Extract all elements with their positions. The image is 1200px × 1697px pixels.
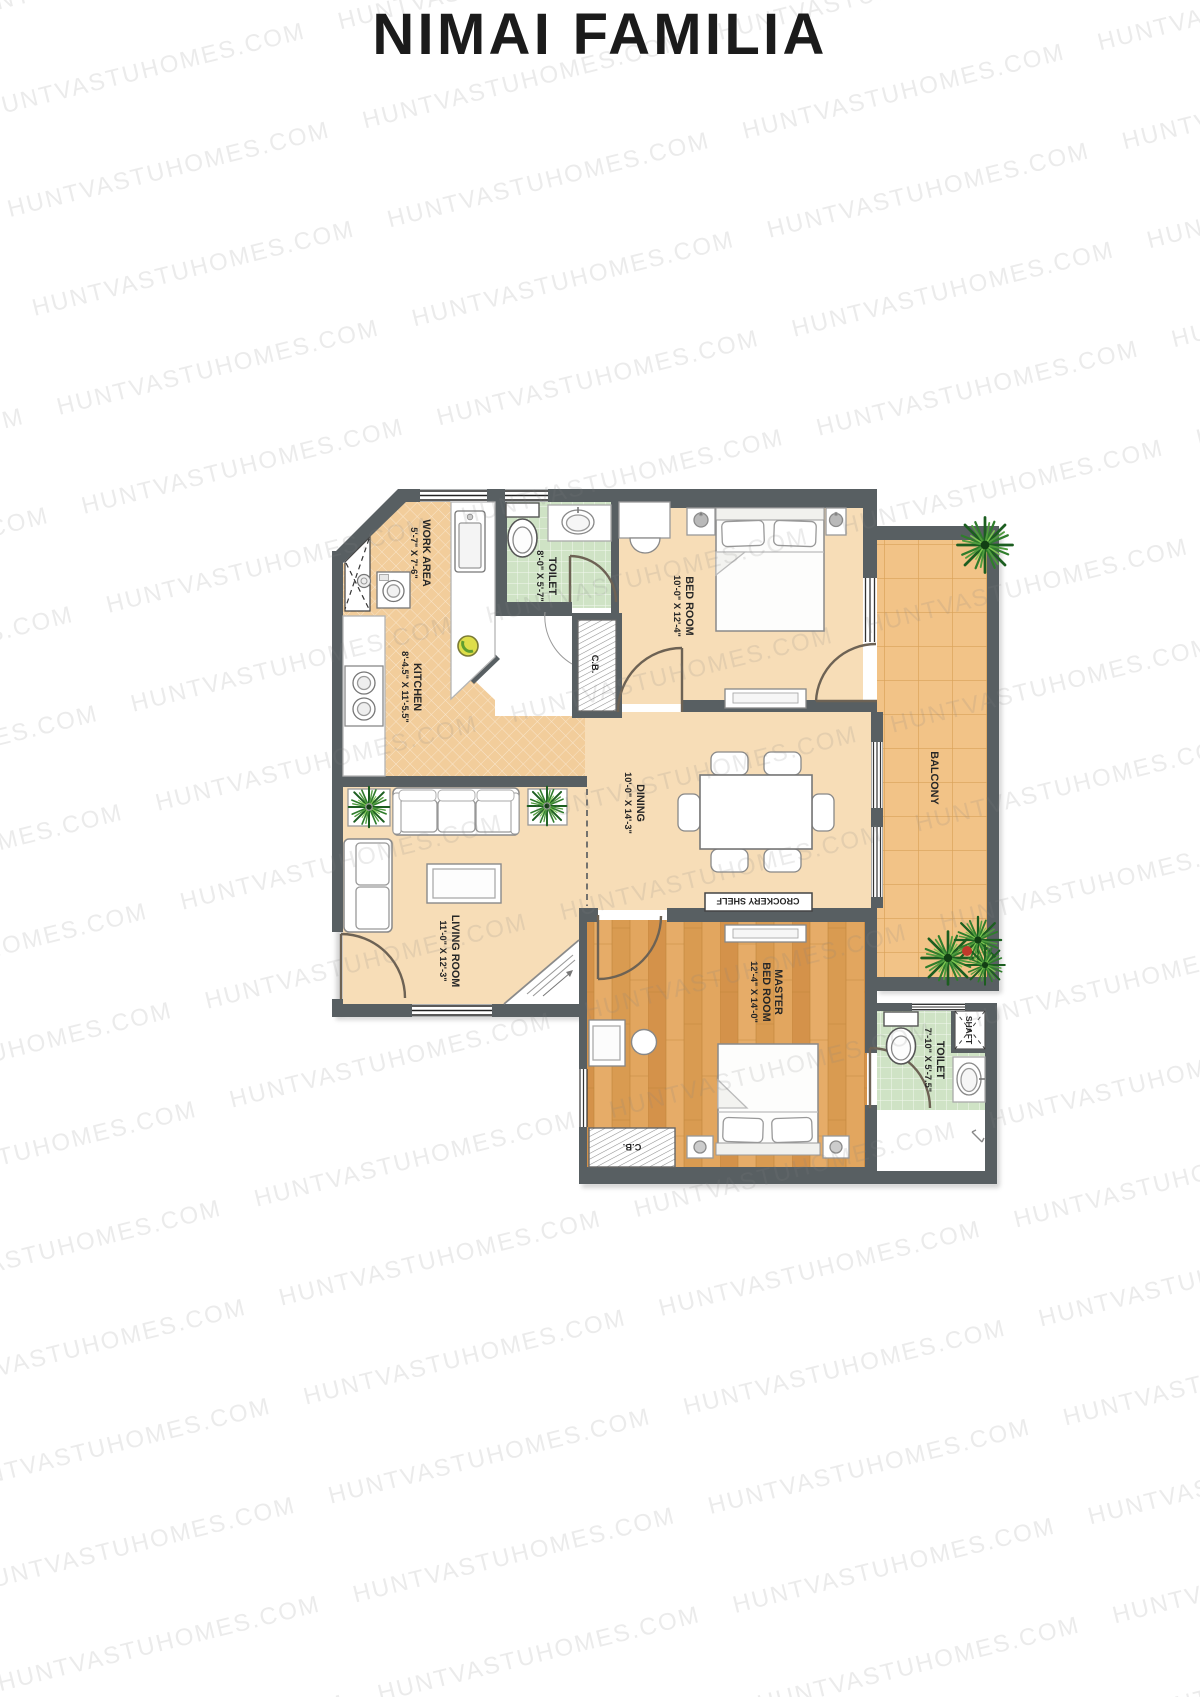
svg-text:KITCHEN: KITCHEN [411,663,423,711]
svg-text:8'-4.5" X 11'-5.5": 8'-4.5" X 11'-5.5" [400,651,410,723]
svg-text:BED ROOM: BED ROOM [683,576,695,635]
svg-text:BALCONY: BALCONY [928,751,940,805]
svg-text:C.B.: C.B. [623,1142,642,1152]
svg-text:CROCKERY SHELF: CROCKERY SHELF [716,896,800,906]
svg-text:NIMAI FAMILIA: NIMAI FAMILIA [372,2,827,67]
svg-text:C.B.: C.B. [590,655,600,674]
svg-text:10'-0" X 12'-4": 10'-0" X 12'-4" [672,575,682,637]
svg-text:TOILET: TOILET [934,1041,946,1080]
